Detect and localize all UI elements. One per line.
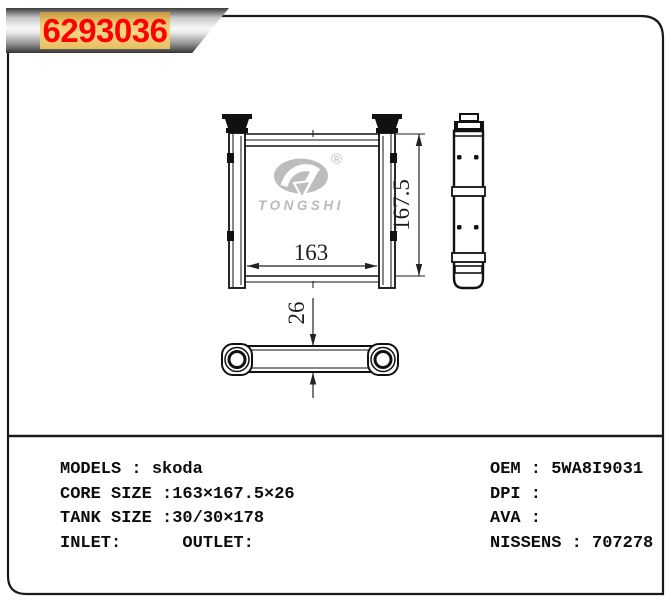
inlet-cap <box>222 114 252 133</box>
part-number-plate: 6293036 <box>40 12 170 49</box>
spec-models: MODELS : skoda <box>60 458 295 483</box>
dimension-width: 163 <box>247 240 377 269</box>
datasheet-page: ® TONGSHI <box>0 0 672 604</box>
part-number: 6293036 <box>43 14 168 47</box>
side-view <box>452 114 485 288</box>
side-cap <box>460 114 478 121</box>
side-band <box>455 266 482 273</box>
outlet-cap <box>372 114 402 133</box>
brand-watermark: ® TONGSHI <box>258 151 344 213</box>
side-band <box>452 253 485 262</box>
dim-depth-label: 26 <box>284 302 309 325</box>
bottom-view <box>222 281 398 375</box>
side-band <box>452 187 485 196</box>
dim-height-label: 167.5 <box>389 179 414 231</box>
side-body <box>454 131 483 288</box>
spec-inlet-outlet: INLET: OUTLET: <box>60 532 295 557</box>
spec-oem: OEM : 5WA8I9031 <box>490 458 653 483</box>
spec-dpi: DPI : <box>490 483 653 508</box>
part-number-ribbon: 6293036 <box>6 8 229 53</box>
spec-tank-size: TANK SIZE :30/30×178 <box>60 507 295 532</box>
spec-nissens: NISSENS : 707278 <box>490 532 653 557</box>
spec-column-left: MODELS : skoda CORE SIZE :163×167.5×26 T… <box>60 458 295 556</box>
spec-column-right: OEM : 5WA8I9031 DPI : AVA : NISSENS : 70… <box>490 458 653 556</box>
spec-core-size: CORE SIZE :163×167.5×26 <box>60 483 295 508</box>
logo-brand-text: TONGSHI <box>258 198 344 213</box>
spec-ava: AVA : <box>490 507 653 532</box>
registered-trademark-icon: ® <box>331 151 342 168</box>
dim-width-label: 163 <box>294 240 329 265</box>
dimension-depth: 26 <box>284 298 316 398</box>
